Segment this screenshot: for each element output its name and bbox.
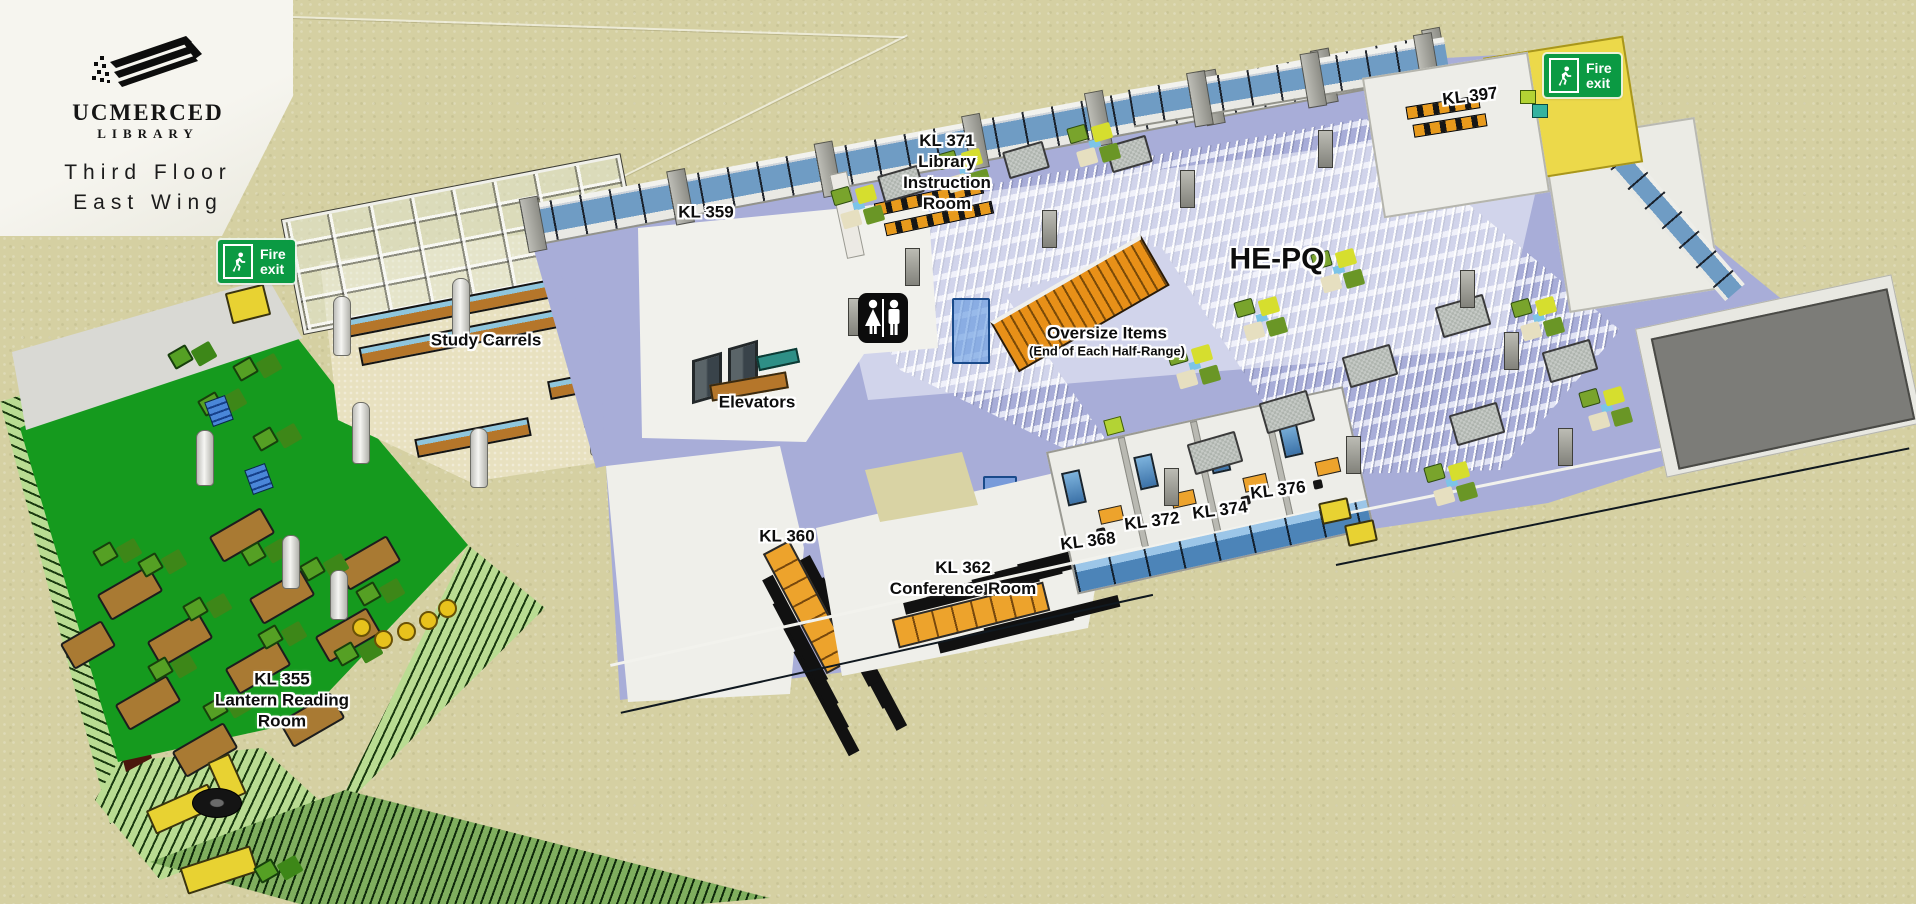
pillar: [470, 428, 488, 488]
label-study-carrels: Study Carrels: [431, 330, 542, 351]
floor-map: KL 359 KL 371Library InstructionRoom KL …: [0, 0, 1916, 904]
label-kl355: KL 355Lantern ReadingRoom: [215, 669, 349, 732]
label-kl359: KL 359: [678, 202, 733, 223]
sketch-outline: [293, 16, 905, 38]
display-case: [952, 298, 990, 364]
fire-exit-sign: Fire exit: [218, 240, 295, 283]
tire-seat: [192, 788, 242, 818]
pillar: [352, 402, 370, 464]
pillar: [333, 296, 351, 356]
label-kl371: KL 371Library InstructionRoom: [903, 130, 991, 214]
stool: [419, 611, 438, 630]
label-kl360: KL 360: [759, 526, 814, 547]
restroom-icon: [858, 293, 908, 348]
running-man-icon: [1549, 58, 1579, 93]
label-hepq: HE-PQ: [1229, 249, 1324, 270]
label-elevators: Elevators: [719, 392, 796, 413]
fire-exit-sign: Fire exit: [1544, 54, 1621, 97]
kl397-room: [1362, 52, 1550, 219]
library-logo-icon: [88, 28, 208, 105]
label-oversize: Oversize Items (End of Each Half-Range): [1029, 323, 1185, 360]
kl397-chair: [1520, 90, 1536, 104]
library-logo-sub: LIBRARY: [0, 126, 296, 142]
running-man-icon: [223, 244, 253, 279]
kl397-chair: [1532, 104, 1548, 118]
floor-title: Third Floor East Wing: [0, 158, 296, 218]
stool: [397, 622, 416, 641]
label-kl362: KL 362Conference Room: [890, 557, 1036, 599]
info-panel: UCMERCED LIBRARY Third Floor East Wing: [0, 0, 296, 238]
pillar: [282, 535, 300, 589]
stool: [352, 618, 371, 637]
pillar: [330, 570, 348, 620]
stool: [438, 599, 457, 618]
stool: [374, 630, 393, 649]
pillar: [196, 430, 214, 486]
